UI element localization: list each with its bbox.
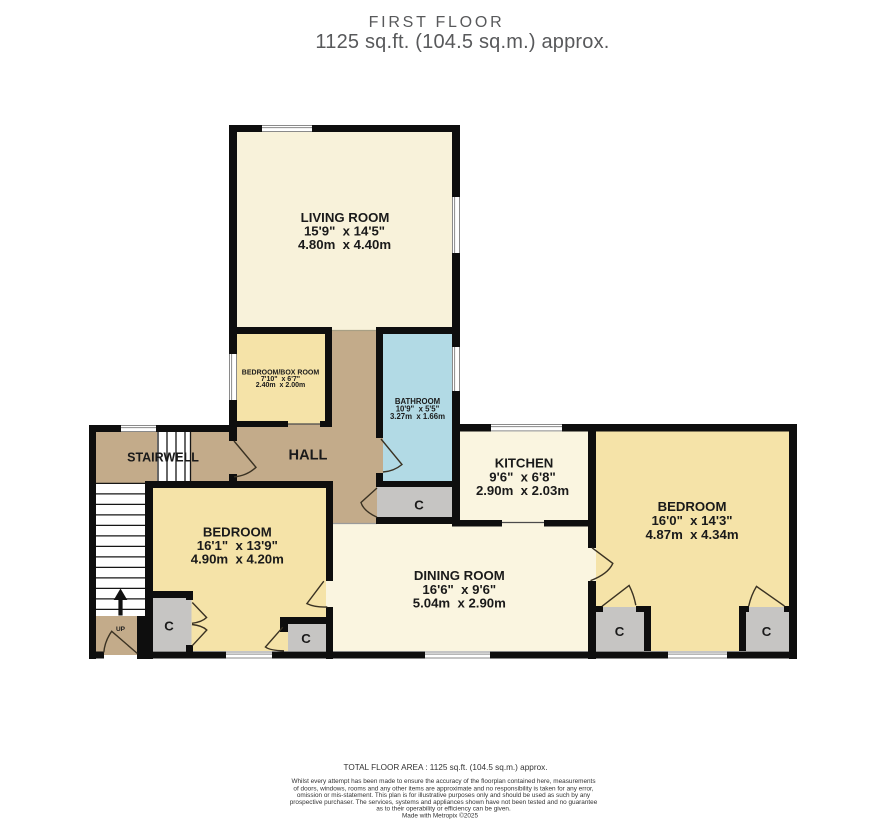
svg-text:Whilst every attempt has been: Whilst every attempt has been made to en…	[291, 778, 595, 785]
svg-text:DINING ROOM: DINING ROOM	[414, 568, 505, 583]
svg-text:C: C	[301, 631, 311, 646]
svg-text:2.40m x 2.00m: 2.40m x 2.00m	[256, 382, 305, 389]
svg-text:STAIRWELL: STAIRWELL	[127, 451, 199, 465]
svg-text:TOTAL FLOOR AREA : 1125 sq.ft.: TOTAL FLOOR AREA : 1125 sq.ft. (104.5 sq…	[343, 763, 547, 772]
svg-text:UP: UP	[116, 626, 126, 633]
svg-text:3.27m x 1.66m: 3.27m x 1.66m	[390, 412, 445, 421]
svg-text:4.87m x 4.34m: 4.87m x 4.34m	[645, 527, 738, 542]
svg-text:C: C	[762, 624, 772, 639]
svg-text:5.04m x 2.90m: 5.04m x 2.90m	[413, 596, 506, 611]
svg-text:Made with Metropix ©2025: Made with Metropix ©2025	[402, 811, 479, 819]
svg-text:C: C	[414, 498, 424, 513]
svg-text:FIRST FLOOR: FIRST FLOOR	[369, 14, 505, 31]
svg-text:16'0" x 14'3": 16'0" x 14'3"	[651, 513, 732, 528]
svg-text:C: C	[615, 624, 625, 639]
svg-text:2.90m x 2.03m: 2.90m x 2.03m	[476, 483, 569, 498]
svg-text:BEDROOM: BEDROOM	[658, 499, 727, 514]
svg-text:C: C	[164, 619, 174, 634]
svg-text:4.90m x 4.20m: 4.90m x 4.20m	[191, 551, 284, 566]
svg-text:1125 sq.ft. (104.5 sq.m.) appr: 1125 sq.ft. (104.5 sq.m.) approx.	[315, 31, 609, 53]
svg-text:HALL: HALL	[289, 448, 328, 464]
svg-text:4.80m x 4.40m: 4.80m x 4.40m	[298, 237, 391, 252]
